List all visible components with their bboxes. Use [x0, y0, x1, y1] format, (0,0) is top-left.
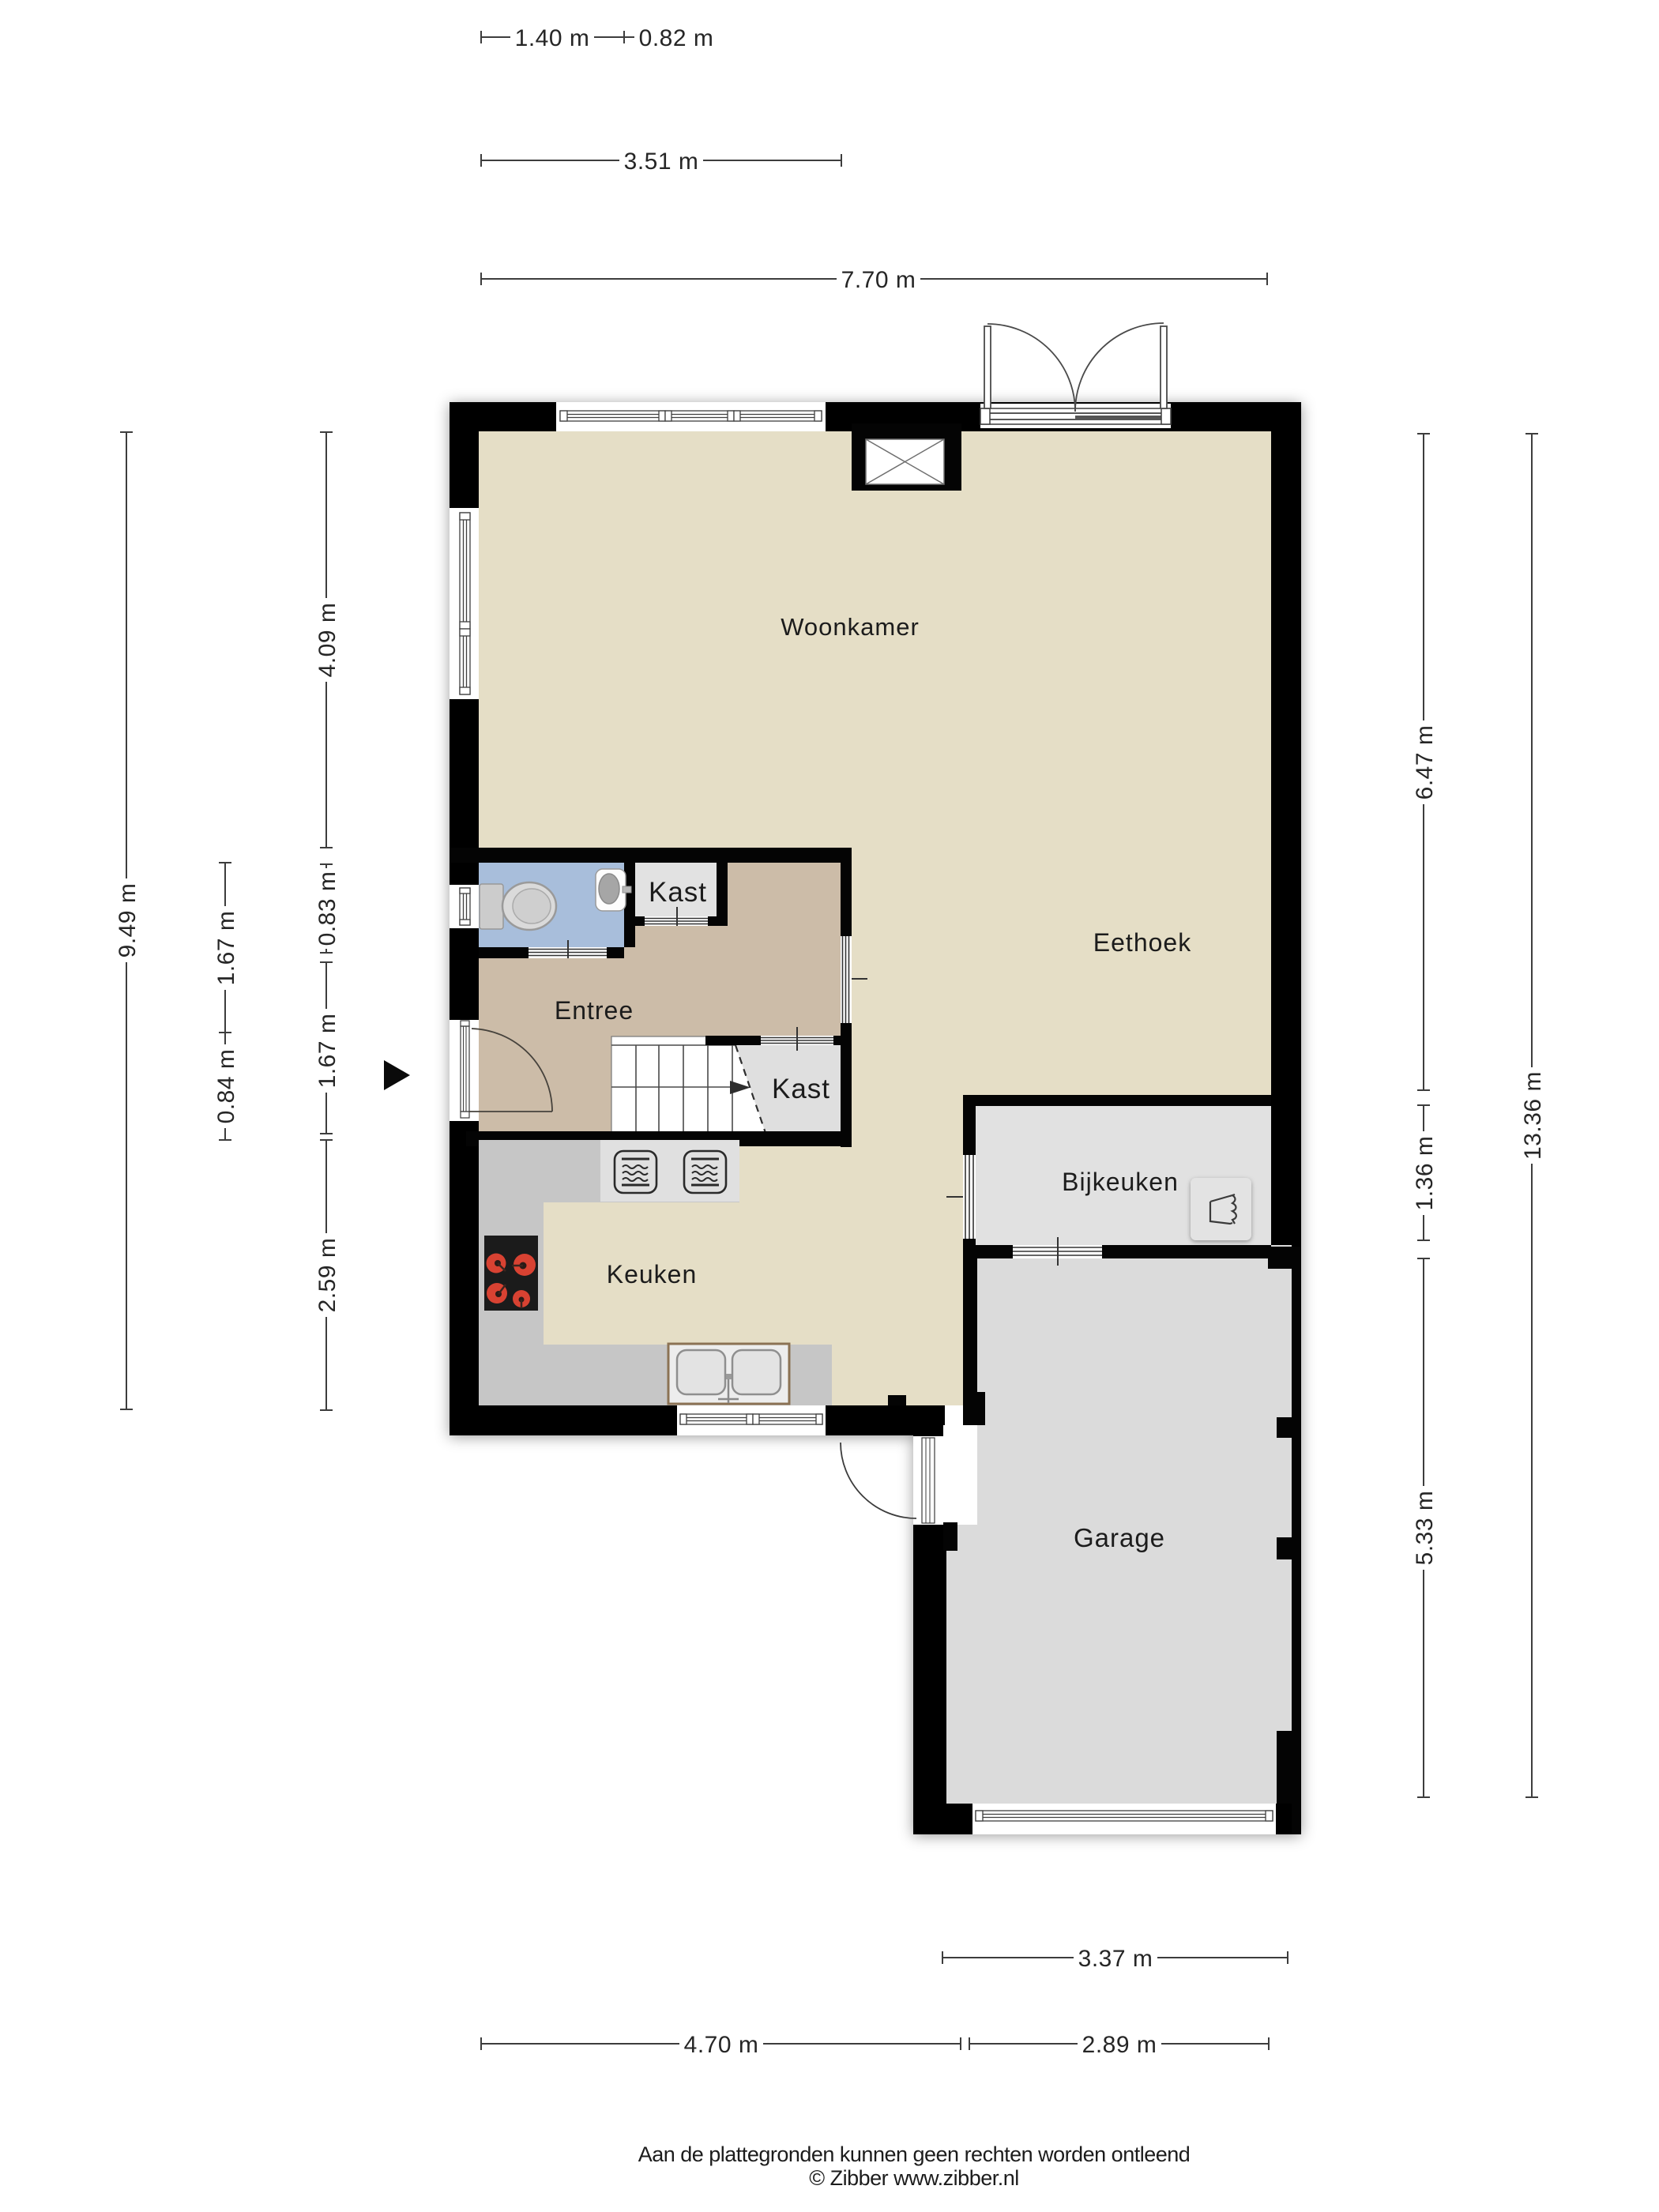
- svg-text:Aan de plattegronden kunnen ge: Aan de plattegronden kunnen geen rechten…: [638, 2142, 1191, 2166]
- svg-text:13.36 m: 13.36 m: [1520, 1071, 1546, 1160]
- svg-text:0.82 m: 0.82 m: [639, 25, 714, 51]
- svg-text:Kast: Kast: [649, 877, 707, 908]
- svg-text:0.83 m: 0.83 m: [314, 871, 340, 946]
- svg-text:4.09 m: 4.09 m: [314, 603, 340, 678]
- svg-text:Eethoek: Eethoek: [1093, 928, 1191, 957]
- svg-text:Entree: Entree: [555, 996, 634, 1025]
- svg-text:6.47 m: 6.47 m: [1412, 725, 1438, 800]
- svg-text:Garage: Garage: [1074, 1523, 1165, 1552]
- svg-text:Keuken: Keuken: [607, 1260, 698, 1288]
- svg-text:2.89 m: 2.89 m: [1082, 2032, 1157, 2058]
- svg-text:1.40 m: 1.40 m: [515, 25, 590, 51]
- svg-text:5.33 m: 5.33 m: [1412, 1491, 1438, 1566]
- svg-text:© Zibber www.zibber.nl: © Zibber www.zibber.nl: [809, 2166, 1019, 2190]
- svg-text:1.67 m: 1.67 m: [213, 911, 239, 986]
- svg-text:1.67 m: 1.67 m: [314, 1014, 340, 1089]
- svg-text:2.59 m: 2.59 m: [314, 1238, 340, 1313]
- svg-text:0.84 m: 0.84 m: [213, 1049, 239, 1124]
- svg-text:1.36 m: 1.36 m: [1412, 1136, 1438, 1211]
- svg-text:3.51 m: 3.51 m: [624, 149, 699, 175]
- svg-text:Kast: Kast: [772, 1074, 830, 1104]
- svg-text:9.49 m: 9.49 m: [115, 883, 141, 958]
- svg-text:Woonkamer: Woonkamer: [781, 613, 920, 641]
- svg-text:4.70 m: 4.70 m: [684, 2032, 759, 2058]
- svg-text:3.37 m: 3.37 m: [1078, 1946, 1153, 1972]
- svg-text:7.70 m: 7.70 m: [841, 267, 916, 293]
- svg-text:Bijkeuken: Bijkeuken: [1062, 1168, 1179, 1196]
